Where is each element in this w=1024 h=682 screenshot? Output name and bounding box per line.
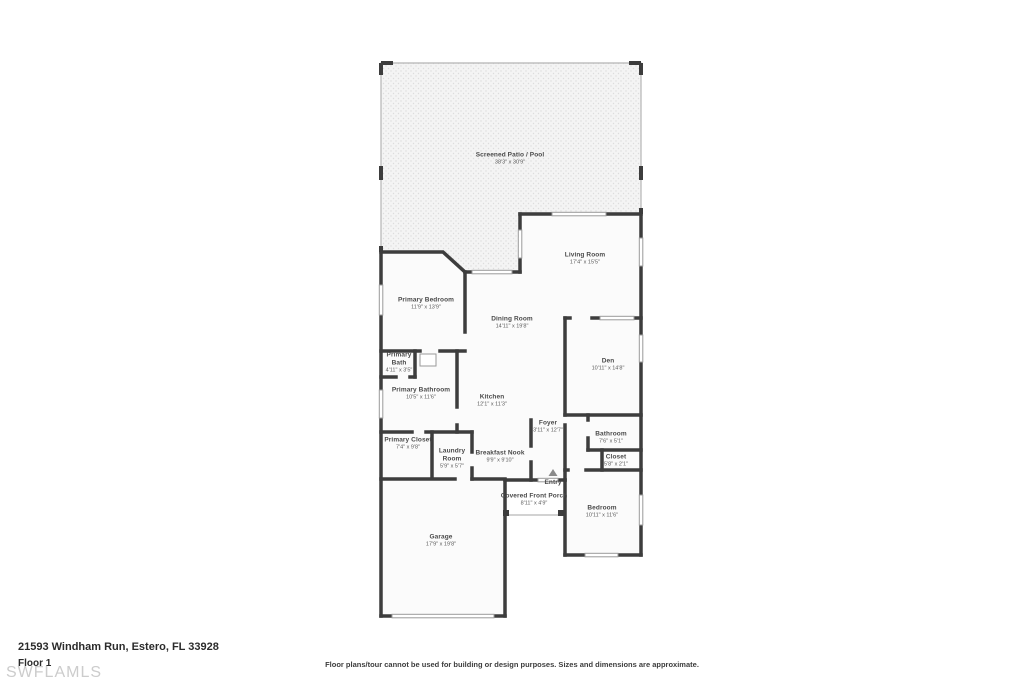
garage-door <box>392 614 494 618</box>
porch-outline <box>503 480 565 516</box>
property-address: 21593 Windham Run, Estero, FL 33928 <box>18 641 219 653</box>
bath-fixture <box>420 354 436 366</box>
disclaimer-text: Floor plans/tour cannot be used for buil… <box>0 660 1024 669</box>
floorplan-drawing <box>0 0 1024 682</box>
floorplan-page: Screened Patio / Pool 38'3" x 30'9" Livi… <box>0 0 1024 682</box>
